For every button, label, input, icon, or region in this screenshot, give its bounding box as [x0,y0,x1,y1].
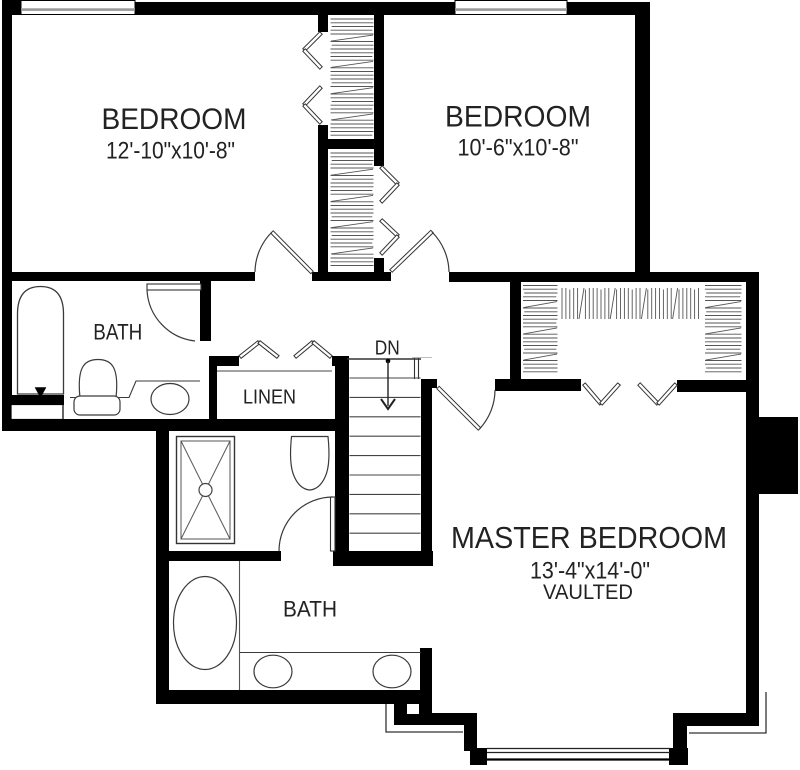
svg-text:VAULTED: VAULTED [543,581,633,604]
svg-text:BATH: BATH [93,320,142,345]
svg-text:BATH: BATH [283,597,337,622]
svg-text:DN: DN [375,337,400,360]
svg-text:12'-10"x10'-8": 12'-10"x10'-8" [106,138,235,165]
svg-text:10'-6"x10'-8": 10'-6"x10'-8" [458,135,579,162]
svg-text:BEDROOM: BEDROOM [102,103,247,136]
svg-text:LINEN: LINEN [243,386,296,409]
svg-text:BEDROOM: BEDROOM [445,101,591,134]
svg-text:MASTER BEDROOM: MASTER BEDROOM [451,520,727,555]
